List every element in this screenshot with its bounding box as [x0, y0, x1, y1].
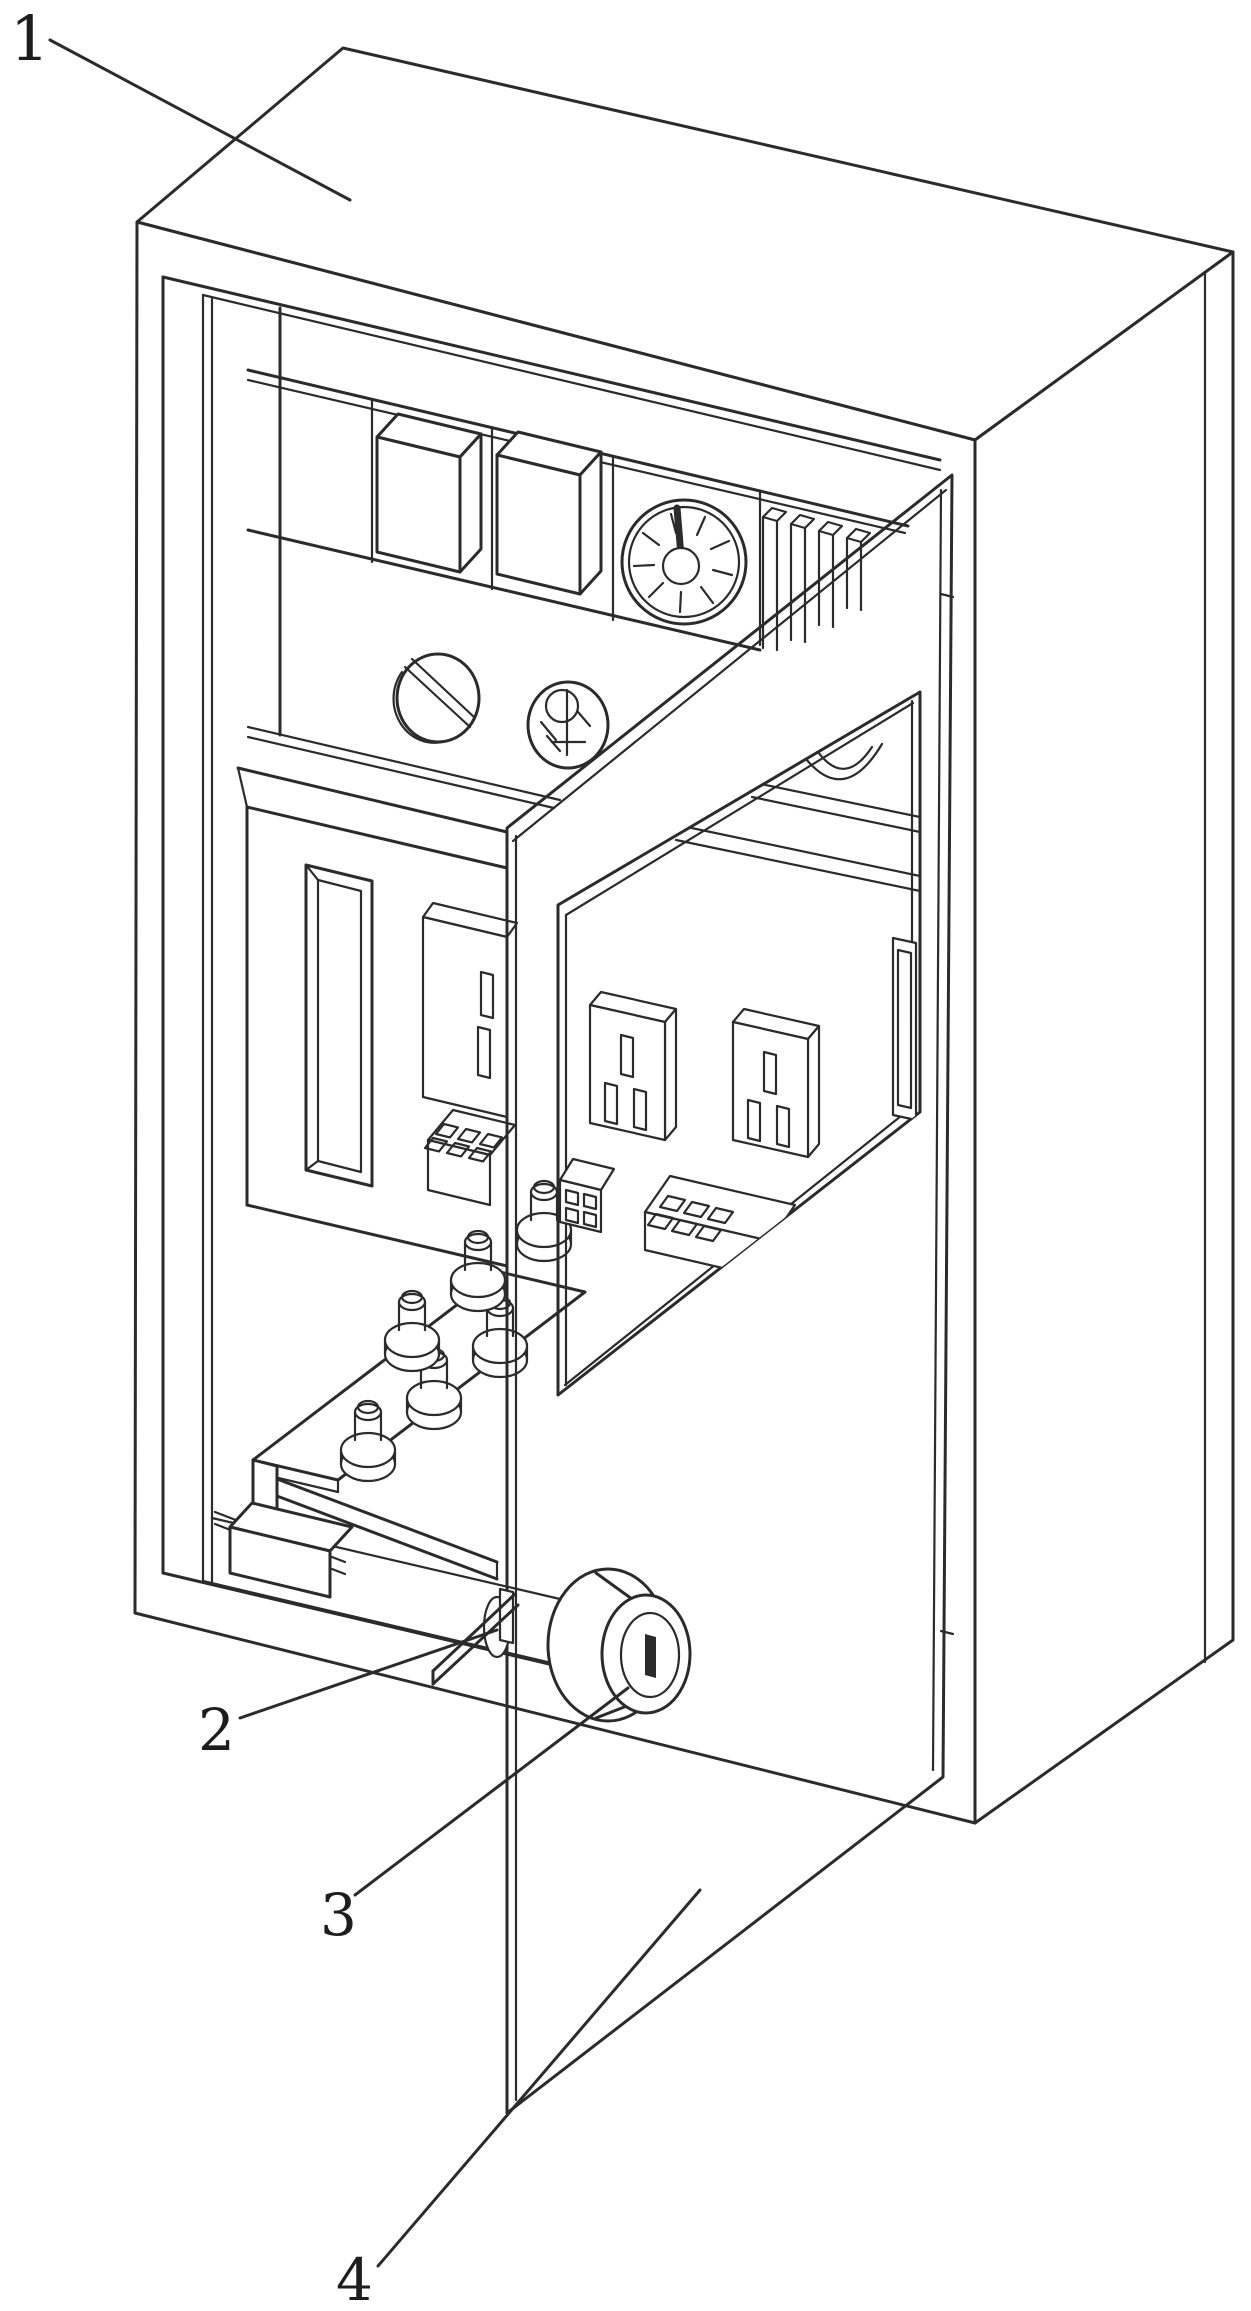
socket-outlet-a [590, 992, 676, 1140]
socket-outlet-left [423, 903, 517, 1117]
socket-outlet-b [733, 1009, 819, 1157]
switch-block-1 [377, 414, 481, 572]
patent-figure-page: 1 2 3 4 [0, 0, 1251, 2311]
screw-head [394, 654, 479, 743]
keyhole-cam [528, 682, 608, 768]
ref-label-4: 4 [336, 2246, 373, 2311]
ref-label-2: 2 [198, 1696, 235, 1764]
keyhole-slot [645, 1634, 656, 1678]
ref-label-3: 3 [320, 1881, 357, 1949]
ref-label-1: 1 [10, 2, 49, 75]
socket-outlet-c-partial [893, 938, 916, 1120]
gauge-dial [622, 500, 746, 624]
leader-line-4 [378, 1890, 700, 2266]
switch-block-2 [497, 432, 601, 594]
patent-figure-svg: 1 2 3 4 [0, 0, 1251, 2311]
cabinet-right-face [975, 252, 1233, 1823]
leader-line-3 [355, 1688, 628, 1895]
